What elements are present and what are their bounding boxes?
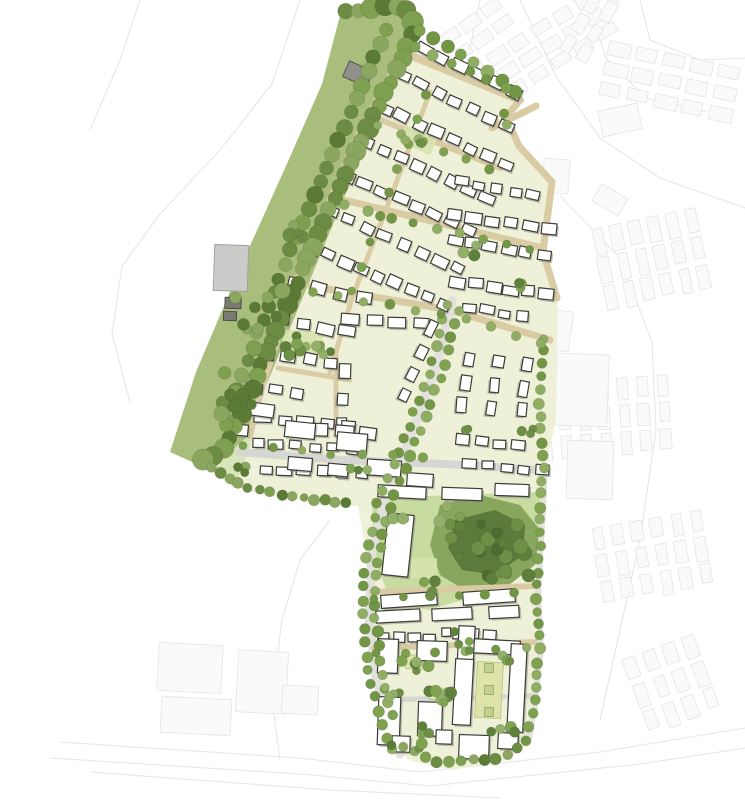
- house: [498, 310, 510, 319]
- context-building: [518, 46, 543, 67]
- tree: [238, 318, 250, 330]
- tree: [370, 691, 380, 701]
- tree: [366, 238, 374, 246]
- house: [303, 352, 317, 365]
- building: [376, 609, 423, 625]
- tree: [224, 389, 236, 401]
- tree: [416, 738, 427, 749]
- tree: [450, 627, 459, 636]
- tree: [526, 430, 534, 438]
- tree: [359, 624, 370, 635]
- tree: [414, 396, 424, 406]
- tree: [366, 679, 376, 689]
- house: [511, 440, 528, 453]
- tree: [443, 300, 452, 309]
- house: [297, 318, 311, 329]
- house: [447, 208, 464, 223]
- house: [339, 364, 351, 379]
- house: [269, 384, 283, 394]
- tree: [411, 657, 421, 667]
- tree: [419, 577, 429, 587]
- context-building: [608, 223, 626, 251]
- tree: [425, 591, 435, 601]
- tree: [537, 358, 547, 368]
- context-building: [592, 227, 608, 255]
- tree: [398, 742, 408, 752]
- context-block-band: [590, 510, 714, 607]
- house: [324, 358, 337, 369]
- context-road: [90, 0, 140, 130]
- tree: [363, 465, 372, 474]
- tree: [416, 426, 425, 435]
- house: [516, 310, 530, 323]
- tree: [476, 520, 485, 529]
- house: [484, 216, 502, 230]
- house: [462, 303, 478, 315]
- tree: [511, 519, 524, 532]
- house: [310, 444, 321, 453]
- tree: [277, 490, 288, 501]
- tree: [401, 136, 410, 145]
- tree: [300, 493, 308, 501]
- context-building: [708, 105, 734, 124]
- context-building: [552, 5, 574, 26]
- house: [490, 183, 504, 196]
- tree: [425, 399, 435, 409]
- tree: [536, 477, 546, 487]
- tree: [535, 528, 544, 537]
- tree: [514, 278, 524, 288]
- tree: [537, 450, 548, 461]
- tree: [385, 692, 395, 702]
- tree: [319, 351, 327, 359]
- tree: [334, 291, 343, 300]
- tree: [339, 200, 349, 210]
- tree: [423, 660, 435, 672]
- context-building: [671, 513, 684, 536]
- house: [486, 281, 502, 294]
- context-building: [630, 67, 654, 86]
- context-building: [480, 0, 503, 18]
- tree: [383, 473, 393, 483]
- tree: [264, 487, 274, 497]
- context-building: [684, 208, 699, 234]
- context-building: [635, 248, 650, 276]
- tree: [536, 412, 546, 422]
- tree: [498, 564, 512, 578]
- tree: [536, 338, 546, 348]
- tree: [215, 467, 226, 478]
- tree: [392, 164, 401, 173]
- context-building: [640, 430, 653, 451]
- tree: [531, 682, 541, 692]
- tree: [354, 466, 362, 474]
- building: [376, 609, 421, 623]
- tree: [408, 407, 417, 416]
- tree: [526, 245, 534, 253]
- tree: [466, 67, 475, 76]
- tree: [282, 242, 297, 257]
- tree: [379, 23, 393, 37]
- context-building: [690, 510, 704, 532]
- house: [510, 188, 522, 198]
- house: [464, 212, 482, 225]
- context-building: [559, 34, 577, 54]
- tree: [359, 297, 368, 306]
- tree: [465, 646, 474, 655]
- building: [407, 473, 434, 488]
- tree: [401, 463, 412, 474]
- house: [518, 380, 530, 397]
- tree: [360, 552, 371, 563]
- tree: [531, 658, 542, 669]
- house: [367, 315, 385, 328]
- tree: [308, 494, 319, 505]
- tree: [446, 532, 458, 544]
- tree: [533, 608, 542, 617]
- house: [457, 374, 472, 393]
- house: [297, 318, 313, 332]
- tree: [230, 292, 241, 303]
- tree: [418, 140, 426, 148]
- house: [388, 317, 408, 330]
- tree: [437, 310, 446, 319]
- tree: [413, 115, 422, 124]
- tree: [432, 224, 442, 234]
- context-building: [619, 404, 630, 427]
- tree: [388, 450, 397, 459]
- context-building: [657, 375, 669, 397]
- tree: [381, 683, 389, 691]
- tree: [357, 608, 367, 618]
- tree: [375, 211, 385, 221]
- tree: [426, 31, 440, 45]
- house: [482, 461, 494, 469]
- tree: [491, 528, 502, 539]
- tree: [471, 241, 480, 250]
- tree: [214, 406, 230, 422]
- masterplan-figure: [0, 0, 745, 800]
- masterplan-svg: [0, 0, 745, 800]
- house: [472, 181, 485, 191]
- tree: [362, 652, 373, 663]
- house: [501, 464, 514, 473]
- tree: [439, 359, 450, 370]
- house: [253, 438, 264, 447]
- house: [475, 436, 491, 449]
- house: [493, 440, 508, 451]
- context-block-band: [590, 208, 712, 313]
- tree: [437, 374, 446, 383]
- context-building: [599, 82, 621, 99]
- tree: [243, 483, 252, 492]
- tree: [291, 338, 302, 349]
- building: [328, 463, 349, 477]
- tree: [532, 580, 541, 589]
- house: [460, 375, 473, 391]
- tree: [410, 42, 421, 53]
- context-building: [619, 577, 634, 598]
- tree: [363, 665, 373, 675]
- context-building: [598, 103, 643, 137]
- tree: [534, 619, 544, 629]
- tree: [447, 59, 457, 69]
- tree: [346, 464, 355, 473]
- tree: [377, 719, 388, 730]
- tree: [371, 513, 380, 522]
- tree: [501, 83, 511, 93]
- tree: [511, 331, 521, 341]
- tree: [298, 446, 306, 454]
- building: [442, 487, 482, 500]
- tree: [319, 161, 333, 175]
- tree: [424, 728, 434, 738]
- tree: [487, 727, 496, 736]
- tree: [533, 398, 544, 409]
- tree: [445, 687, 457, 699]
- tree: [399, 593, 407, 601]
- tree: [434, 515, 447, 528]
- tree: [240, 468, 248, 476]
- tree: [445, 332, 456, 343]
- context-building: [617, 252, 632, 280]
- context-building: [679, 268, 694, 294]
- tree: [502, 120, 512, 130]
- context-building: [652, 244, 669, 270]
- context-building: [615, 550, 630, 576]
- tree: [252, 323, 264, 335]
- tree: [371, 570, 381, 580]
- context-building: [642, 708, 660, 730]
- tree: [249, 302, 260, 313]
- tree: [242, 355, 254, 367]
- tree: [358, 450, 367, 459]
- house: [490, 355, 506, 371]
- tree: [535, 502, 546, 513]
- tree: [495, 724, 505, 734]
- house: [448, 276, 466, 290]
- tree: [528, 708, 538, 718]
- context-building: [530, 18, 552, 37]
- context-building: [671, 240, 687, 264]
- tree: [348, 287, 356, 295]
- house: [455, 175, 470, 186]
- context-building: [235, 650, 288, 715]
- tree: [530, 695, 540, 705]
- tree: [234, 368, 249, 383]
- house: [462, 459, 479, 471]
- house: [260, 466, 272, 475]
- tree: [439, 147, 448, 156]
- house: [510, 188, 525, 201]
- context-building: [157, 642, 223, 693]
- context-building: [632, 682, 652, 709]
- tree: [384, 188, 393, 197]
- house: [492, 355, 505, 368]
- house: [541, 223, 559, 238]
- context-building: [681, 694, 701, 720]
- tree: [465, 637, 473, 645]
- tree: [369, 613, 379, 623]
- garden-patch: [411, 558, 437, 578]
- tree: [232, 477, 243, 488]
- tree: [405, 422, 414, 431]
- house: [517, 402, 527, 416]
- house: [468, 278, 483, 289]
- context-road: [272, 520, 330, 760]
- tree: [246, 340, 262, 356]
- context-building: [658, 272, 674, 295]
- tree: [478, 235, 487, 244]
- context-building: [648, 517, 664, 538]
- context-building: [659, 429, 672, 450]
- context-building: [691, 660, 711, 688]
- tree: [399, 433, 409, 443]
- tree: [513, 539, 528, 554]
- tree: [410, 437, 419, 446]
- tree: [330, 132, 346, 148]
- house: [447, 208, 462, 220]
- tree: [445, 519, 456, 530]
- tree: [311, 341, 321, 351]
- tree: [464, 425, 472, 433]
- tree: [284, 349, 295, 360]
- tree: [522, 569, 535, 582]
- building: [287, 456, 312, 471]
- house: [290, 388, 304, 400]
- context-building: [621, 431, 633, 455]
- tree: [371, 586, 380, 595]
- tree: [536, 487, 547, 498]
- tree: [206, 462, 216, 472]
- context-building: [681, 99, 703, 116]
- tree: [462, 154, 471, 163]
- context-building: [661, 641, 680, 665]
- tree: [517, 426, 527, 436]
- tree: [429, 576, 440, 587]
- house: [537, 250, 554, 263]
- tree: [396, 656, 407, 667]
- tree: [420, 752, 431, 763]
- house: [337, 393, 348, 405]
- context-building: [639, 573, 653, 594]
- context-building: [639, 276, 655, 301]
- tree: [377, 486, 387, 496]
- house: [290, 388, 306, 403]
- building: [489, 605, 520, 619]
- tree: [530, 593, 542, 605]
- context-building: [528, 64, 549, 83]
- tree: [372, 649, 380, 657]
- tree: [468, 57, 479, 68]
- context-building: [661, 701, 681, 728]
- context-building: [627, 219, 644, 245]
- tree: [455, 49, 466, 60]
- context-building: [673, 540, 689, 564]
- context-building: [659, 402, 670, 422]
- house: [260, 466, 275, 477]
- tree: [236, 388, 249, 401]
- tree: [371, 498, 381, 508]
- tree: [469, 250, 481, 262]
- tree: [419, 382, 429, 392]
- context-building: [635, 46, 658, 63]
- tree: [454, 521, 465, 532]
- tree: [358, 596, 369, 607]
- tree: [418, 453, 428, 463]
- context-building: [690, 236, 705, 259]
- tree: [262, 292, 273, 303]
- house: [455, 433, 469, 445]
- tree: [537, 372, 546, 381]
- context-building: [508, 32, 530, 52]
- tree: [431, 340, 442, 351]
- context-building: [642, 649, 661, 672]
- context-building: [596, 256, 613, 284]
- tree: [359, 636, 370, 647]
- context-building: [160, 696, 232, 736]
- tree: [509, 727, 520, 738]
- context-building: [653, 93, 679, 111]
- context-building: [592, 527, 605, 550]
- house: [462, 459, 477, 469]
- tree: [489, 753, 501, 765]
- tree: [443, 345, 454, 356]
- tree: [370, 595, 378, 603]
- building: [495, 483, 529, 496]
- context-building: [486, 44, 511, 66]
- building: [432, 607, 473, 621]
- tree: [388, 710, 398, 720]
- tree: [535, 514, 545, 524]
- tree: [397, 513, 408, 524]
- tree: [372, 625, 384, 637]
- house: [475, 436, 489, 447]
- context-building: [681, 634, 701, 660]
- house: [516, 310, 528, 321]
- context-building: [655, 543, 669, 565]
- house: [483, 630, 497, 640]
- house: [253, 438, 266, 449]
- context-building: [713, 84, 738, 101]
- context-building: [693, 536, 709, 562]
- house: [511, 440, 526, 451]
- context-building: [459, 12, 483, 34]
- tree: [421, 90, 431, 100]
- house: [324, 358, 340, 371]
- garden-patch: [484, 707, 493, 716]
- tree: [442, 502, 452, 512]
- tree: [455, 512, 464, 521]
- context-building: [540, 33, 564, 55]
- building: [442, 487, 484, 502]
- tree: [373, 121, 382, 130]
- tree: [358, 581, 368, 591]
- house: [455, 433, 471, 447]
- tree: [287, 491, 297, 501]
- house: [454, 397, 467, 415]
- tree: [439, 698, 448, 707]
- tree: [411, 306, 420, 315]
- tree: [387, 741, 396, 750]
- tree: [456, 756, 466, 766]
- house: [462, 303, 476, 313]
- house: [454, 175, 471, 188]
- house: [486, 401, 497, 416]
- context-building: [671, 668, 691, 694]
- house: [482, 461, 496, 471]
- tree: [486, 322, 496, 332]
